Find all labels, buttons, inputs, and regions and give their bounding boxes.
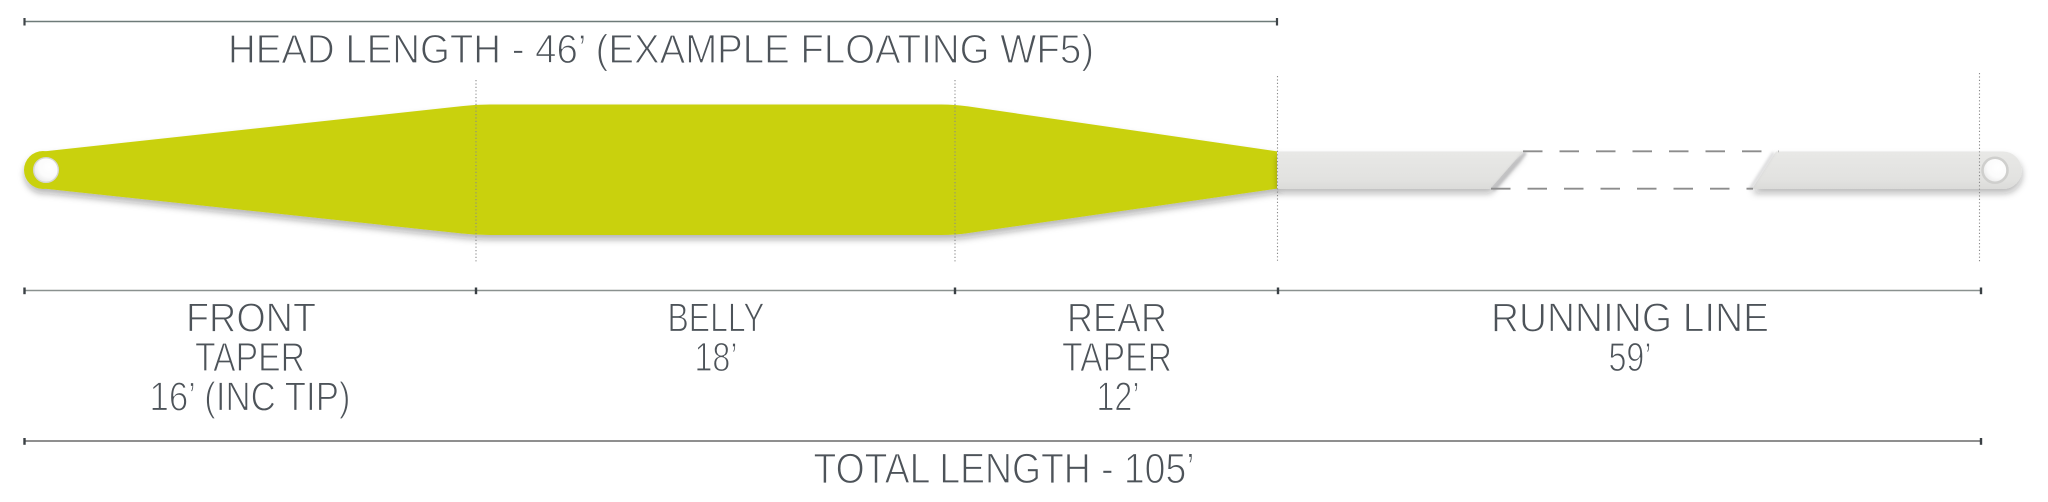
svg-text:18’: 18’ bbox=[695, 334, 738, 380]
svg-text:HEAD LENGTH - 46’ (EXAMPLE FLO: HEAD LENGTH - 46’ (EXAMPLE FLOATING WF5) bbox=[228, 26, 1094, 72]
svg-text:16’ (INC TIP): 16’ (INC TIP) bbox=[150, 374, 351, 420]
svg-text:59’: 59’ bbox=[1609, 334, 1652, 380]
svg-text:12’: 12’ bbox=[1097, 374, 1140, 420]
svg-text:TOTAL LENGTH - 105’: TOTAL LENGTH - 105’ bbox=[814, 445, 1195, 493]
